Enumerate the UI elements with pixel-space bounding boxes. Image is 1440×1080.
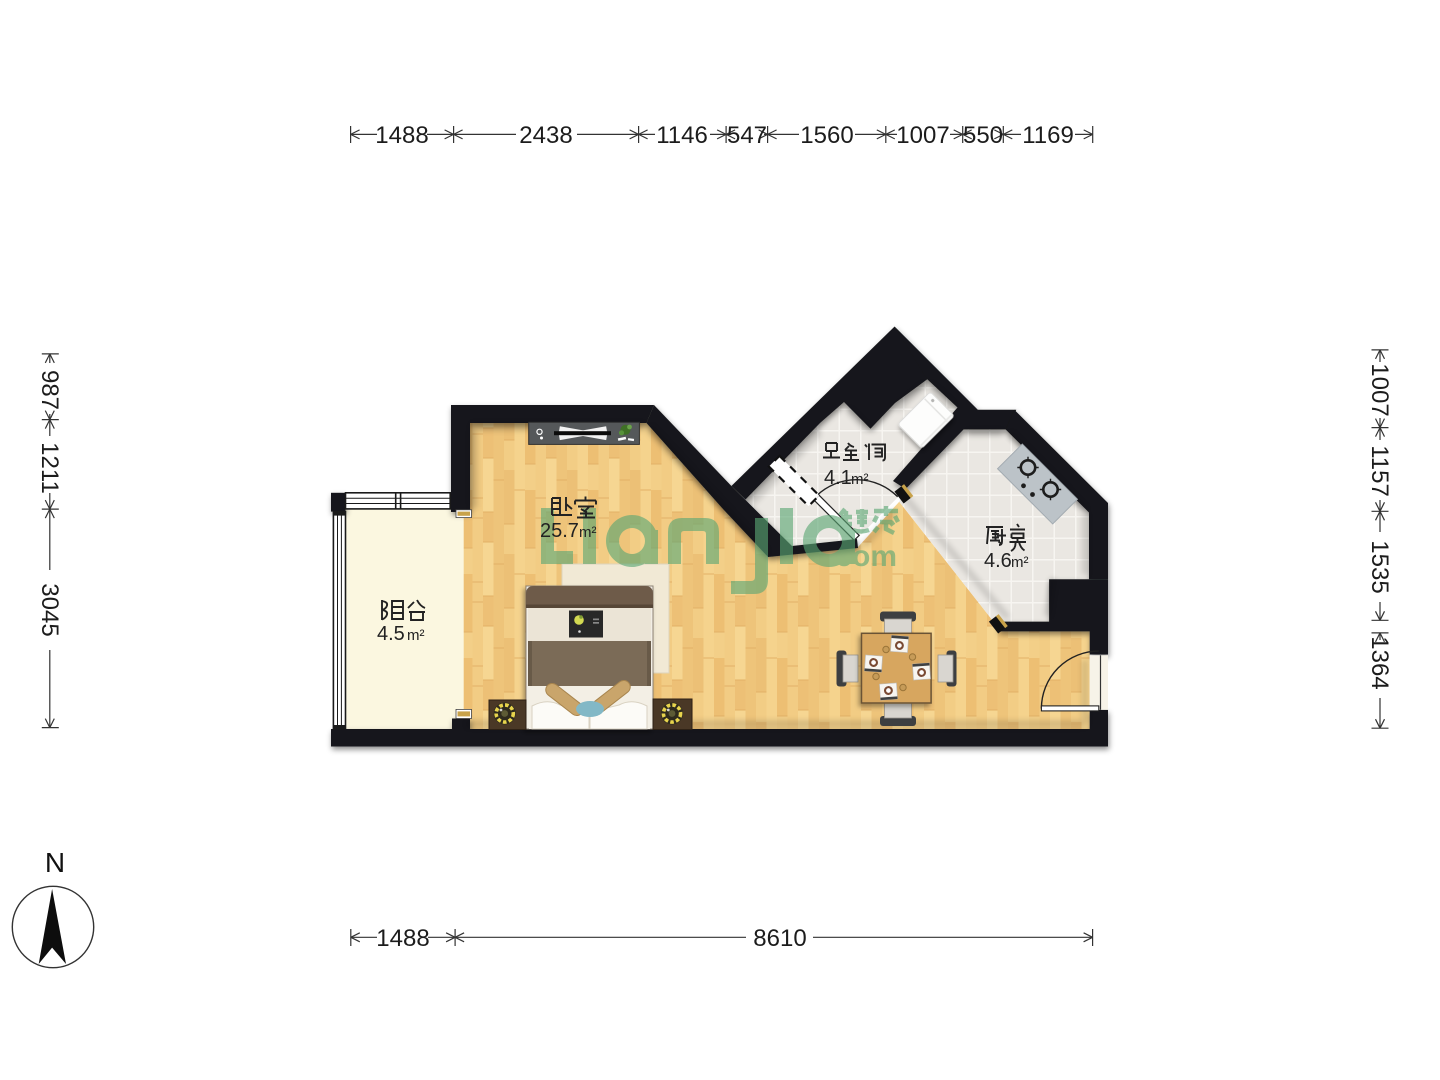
svg-text:N: N [45, 847, 65, 878]
svg-text:8610: 8610 [753, 925, 806, 952]
svg-text:550: 550 [963, 122, 1003, 149]
svg-text:.com: .com [827, 540, 897, 573]
svg-text:1169: 1169 [1022, 122, 1074, 149]
svg-text:1535: 1535 [1366, 540, 1393, 593]
svg-text:547: 547 [727, 122, 767, 149]
svg-text:1007: 1007 [896, 122, 949, 149]
svg-text:3045: 3045 [36, 583, 63, 636]
svg-text:m²: m² [1011, 554, 1029, 571]
svg-text:1211: 1211 [36, 442, 63, 494]
svg-text:4.5: 4.5 [377, 623, 405, 645]
svg-text:1146: 1146 [656, 122, 708, 149]
svg-text:1560: 1560 [800, 122, 853, 149]
svg-text:25.7: 25.7 [540, 520, 579, 542]
svg-text:m²: m² [407, 627, 425, 644]
svg-text:4.6: 4.6 [984, 550, 1012, 572]
svg-text:m²: m² [851, 471, 869, 488]
svg-text:m²: m² [579, 524, 597, 541]
svg-text:987: 987 [36, 370, 63, 410]
svg-text:1364: 1364 [1366, 636, 1393, 689]
svg-text:1007: 1007 [1366, 363, 1393, 416]
svg-text:1157: 1157 [1366, 445, 1393, 497]
svg-text:4.1: 4.1 [824, 467, 852, 489]
svg-text:1488: 1488 [375, 122, 428, 149]
svg-text:1488: 1488 [376, 925, 429, 952]
svg-text:2438: 2438 [519, 122, 572, 149]
